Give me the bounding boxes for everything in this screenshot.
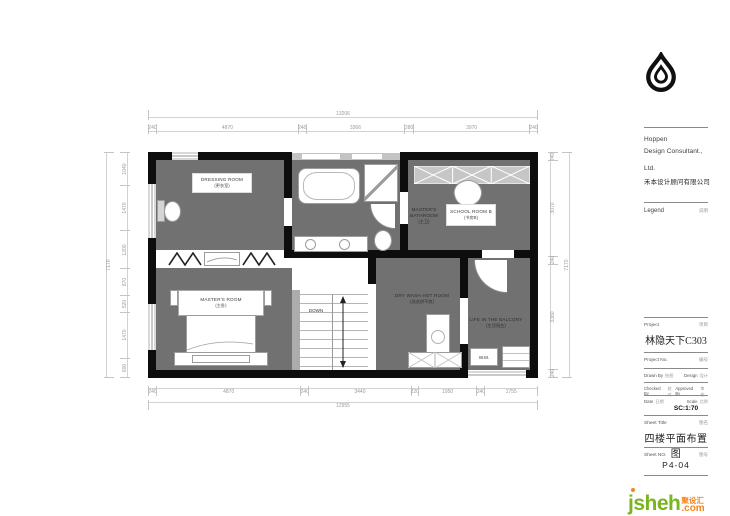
room-name-cn: (生活阳台) (464, 323, 528, 329)
sheet-title-label: Sheet Title (644, 421, 667, 426)
sheet-no-label: Sheet NO. (644, 453, 666, 458)
wall-bath-school (400, 160, 408, 192)
wall-right (530, 152, 538, 378)
dim-value: 1950 (442, 389, 453, 395)
wall-top (400, 152, 538, 160)
room-name-cn: (书房B) (447, 215, 495, 221)
project-no-row: Project No. 编号 (644, 357, 708, 363)
room-label-balcony: LIFE IN THE BALCONY (生活阳台) (464, 314, 528, 332)
wall-top (148, 152, 172, 160)
room-label-master: MASTER'S ROOM (主卧) (180, 293, 262, 313)
design-label: Design (684, 373, 698, 378)
title-block: Hoppen Design Consultant., Ltd. 禾本设计顾问有限… (640, 0, 714, 516)
window-bottom (462, 371, 526, 377)
dim-row-left: 1040 1470 1200 870 520 1470 600 (120, 152, 130, 378)
design-cn: 设计 (700, 373, 708, 379)
company-name-cn: 禾本设计顾问有限公司 (644, 177, 710, 189)
wall-bottom (526, 370, 538, 378)
dim-row-bottom: 240 4870 240 3440 220 1950 240 1755 (148, 386, 538, 396)
sheet-title-label-cn: 图名 (699, 420, 708, 426)
dim-value: 280 (405, 125, 413, 131)
sheet-title-row: Sheet Title 图名 (644, 420, 708, 426)
divider (644, 352, 708, 353)
divider (644, 415, 708, 416)
divider (644, 368, 708, 369)
wall-mid-horizontal (514, 250, 530, 258)
sink-icon (339, 239, 350, 250)
drawn-by-label: Drawn By (644, 373, 663, 378)
room-label-school: SCHOOL ROOM B (书房B) (446, 204, 496, 226)
nightstand (264, 290, 272, 306)
drawn-design-row: Drawn By绘图 Design设计 (644, 373, 708, 379)
dim-value: 13206 (336, 111, 350, 117)
company-droplet-logo-icon (644, 52, 678, 92)
dim-value: 3970 (466, 125, 477, 131)
stair-rail (332, 294, 333, 370)
dim-value: 240 (529, 125, 537, 131)
divider (644, 382, 708, 383)
watermark-j-dot (631, 488, 635, 492)
checked-by-cn: 校对 (668, 386, 676, 398)
bathtub-basin (303, 172, 355, 200)
room-name-cn: (更衣室) (193, 183, 251, 189)
dim-value: 3366 (350, 125, 361, 131)
project-label: Project (644, 323, 659, 328)
scale-value: SC:1:70 (664, 405, 708, 412)
project-no-label-cn: 编号 (699, 357, 708, 363)
company-line: Hoppen (644, 134, 710, 146)
dim-value: 4870 (222, 125, 233, 131)
dim-value: 1470 (122, 202, 128, 213)
sheet-no-label-cn: 图号 (699, 452, 708, 458)
approved-by-cn: 审核 (700, 386, 708, 398)
counter-x (408, 352, 462, 368)
wardrobe-zigzag-icon (168, 252, 202, 266)
washing-machine-box: W.M. (470, 348, 498, 366)
dim-total-bottom: 12955 (148, 400, 538, 410)
wall-top (198, 152, 292, 160)
dim-row-top: 240 4870 240 3366 280 3970 240 (148, 124, 538, 134)
nightstand (170, 290, 178, 306)
room-label-drywash: DRY WASH HOT ROOM (洗衣烘干房) (386, 291, 458, 307)
wm-label: W.M. (479, 355, 489, 360)
legend-label-cn: 说明 (699, 208, 708, 214)
room-name-cn: (洗衣烘干房) (386, 299, 458, 305)
scale-label: Scale (687, 399, 698, 404)
wall-dressing-bath (284, 226, 292, 252)
divider (644, 395, 708, 396)
room-name-cn: (主卫) (404, 219, 444, 225)
dim-value: 7170 (106, 259, 112, 270)
drawing-sheet: DRESSING ROOM (更衣室) MASTER'S BATHROOM (主… (0, 0, 730, 516)
room-name-cn: (主卧) (180, 303, 262, 309)
company-line: Ltd. (644, 163, 710, 175)
bench (192, 355, 250, 363)
watermark-tld: .com (681, 504, 704, 514)
stairs (300, 294, 368, 370)
dim-row-right: 240 3070 240 3380 240 (548, 152, 558, 378)
divider (644, 317, 708, 318)
window-left-1 (148, 184, 156, 238)
dim-value: 520 (122, 300, 128, 308)
bed-throw-curve (187, 330, 255, 354)
stair-arrow-icon (338, 296, 348, 368)
dim-value: 12955 (336, 403, 350, 409)
window-top-bath-1 (302, 154, 340, 159)
watermark-name: jsheh (628, 494, 680, 514)
legend-row: Legend 说明 (644, 208, 708, 214)
divider (644, 202, 708, 203)
dim-value: 3070 (550, 203, 556, 214)
toilet-icon (374, 230, 392, 251)
dim-total-left: 7170 (104, 152, 114, 378)
company-name: Hoppen Design Consultant., Ltd. 禾本设计顾问有限… (644, 134, 710, 189)
dim-total-right: 7170 (562, 152, 572, 378)
stairs-down-label: DOWN (302, 308, 330, 313)
dim-value: 240 (550, 369, 556, 377)
room-label-master-bathroom: MASTER'S BATHROOM (主卫) (404, 202, 444, 230)
company-line: Design Consultant., (644, 146, 710, 158)
dim-value: 3440 (354, 389, 365, 395)
toilet-icon (164, 201, 181, 222)
dim-value: 870 (122, 278, 128, 286)
wall-mid-horizontal (408, 250, 482, 258)
dim-value: 4870 (223, 389, 234, 395)
sink-icon (305, 239, 316, 250)
drawn-by-cn: 绘图 (665, 373, 673, 379)
divider (644, 475, 708, 476)
divider (644, 447, 708, 448)
dim-value: 1470 (122, 330, 128, 341)
shower-icon (364, 164, 398, 202)
wall-dry-balcony (460, 258, 468, 298)
checked-approved-row: Checked By校对 Approved By审核 (644, 386, 708, 398)
project-no-label: Project No. (644, 358, 668, 363)
dim-value: 1200 (122, 244, 128, 255)
partition-stair (292, 290, 300, 370)
shelf-curve (205, 253, 239, 265)
floor-plan: DRESSING ROOM (更衣室) MASTER'S BATHROOM (主… (0, 0, 620, 516)
legend-label: Legend (644, 208, 664, 214)
wall-left (148, 160, 156, 184)
room-label-dressing: DRESSING ROOM (更衣室) (192, 173, 252, 193)
project-row: Project 项目 (644, 322, 708, 328)
window-top-left (172, 152, 198, 160)
counter (502, 346, 530, 368)
project-label-cn: 项目 (699, 322, 708, 328)
divider (644, 127, 708, 128)
wall-bottom (148, 370, 462, 378)
wall-stair-dry (368, 258, 376, 284)
dim-value: 3380 (550, 311, 556, 322)
window-top-bath-2 (352, 154, 382, 159)
date-cn: 日期 (655, 399, 663, 405)
wall-dressing-bath (284, 160, 292, 198)
project-name: 林隐天下C303 (644, 332, 708, 347)
jsheh-watermark: jsheh 聚设汇 .com (628, 486, 730, 514)
window-left-2 (148, 304, 156, 350)
sheet-no-value: P4-04 (644, 460, 708, 470)
dim-value: 600 (122, 364, 128, 372)
dim-value: 1040 (122, 163, 128, 174)
dim-value: 7170 (564, 259, 570, 270)
washing-machine-door (431, 330, 445, 344)
date-label: Date (644, 399, 653, 404)
dim-total-top: 13206 (148, 110, 538, 120)
sheet-no-row: Sheet NO. 图号 (644, 452, 708, 458)
dim-value: 1755 (506, 389, 517, 395)
wardrobe-zigzag-icon (242, 252, 276, 266)
wall-left (148, 238, 156, 304)
